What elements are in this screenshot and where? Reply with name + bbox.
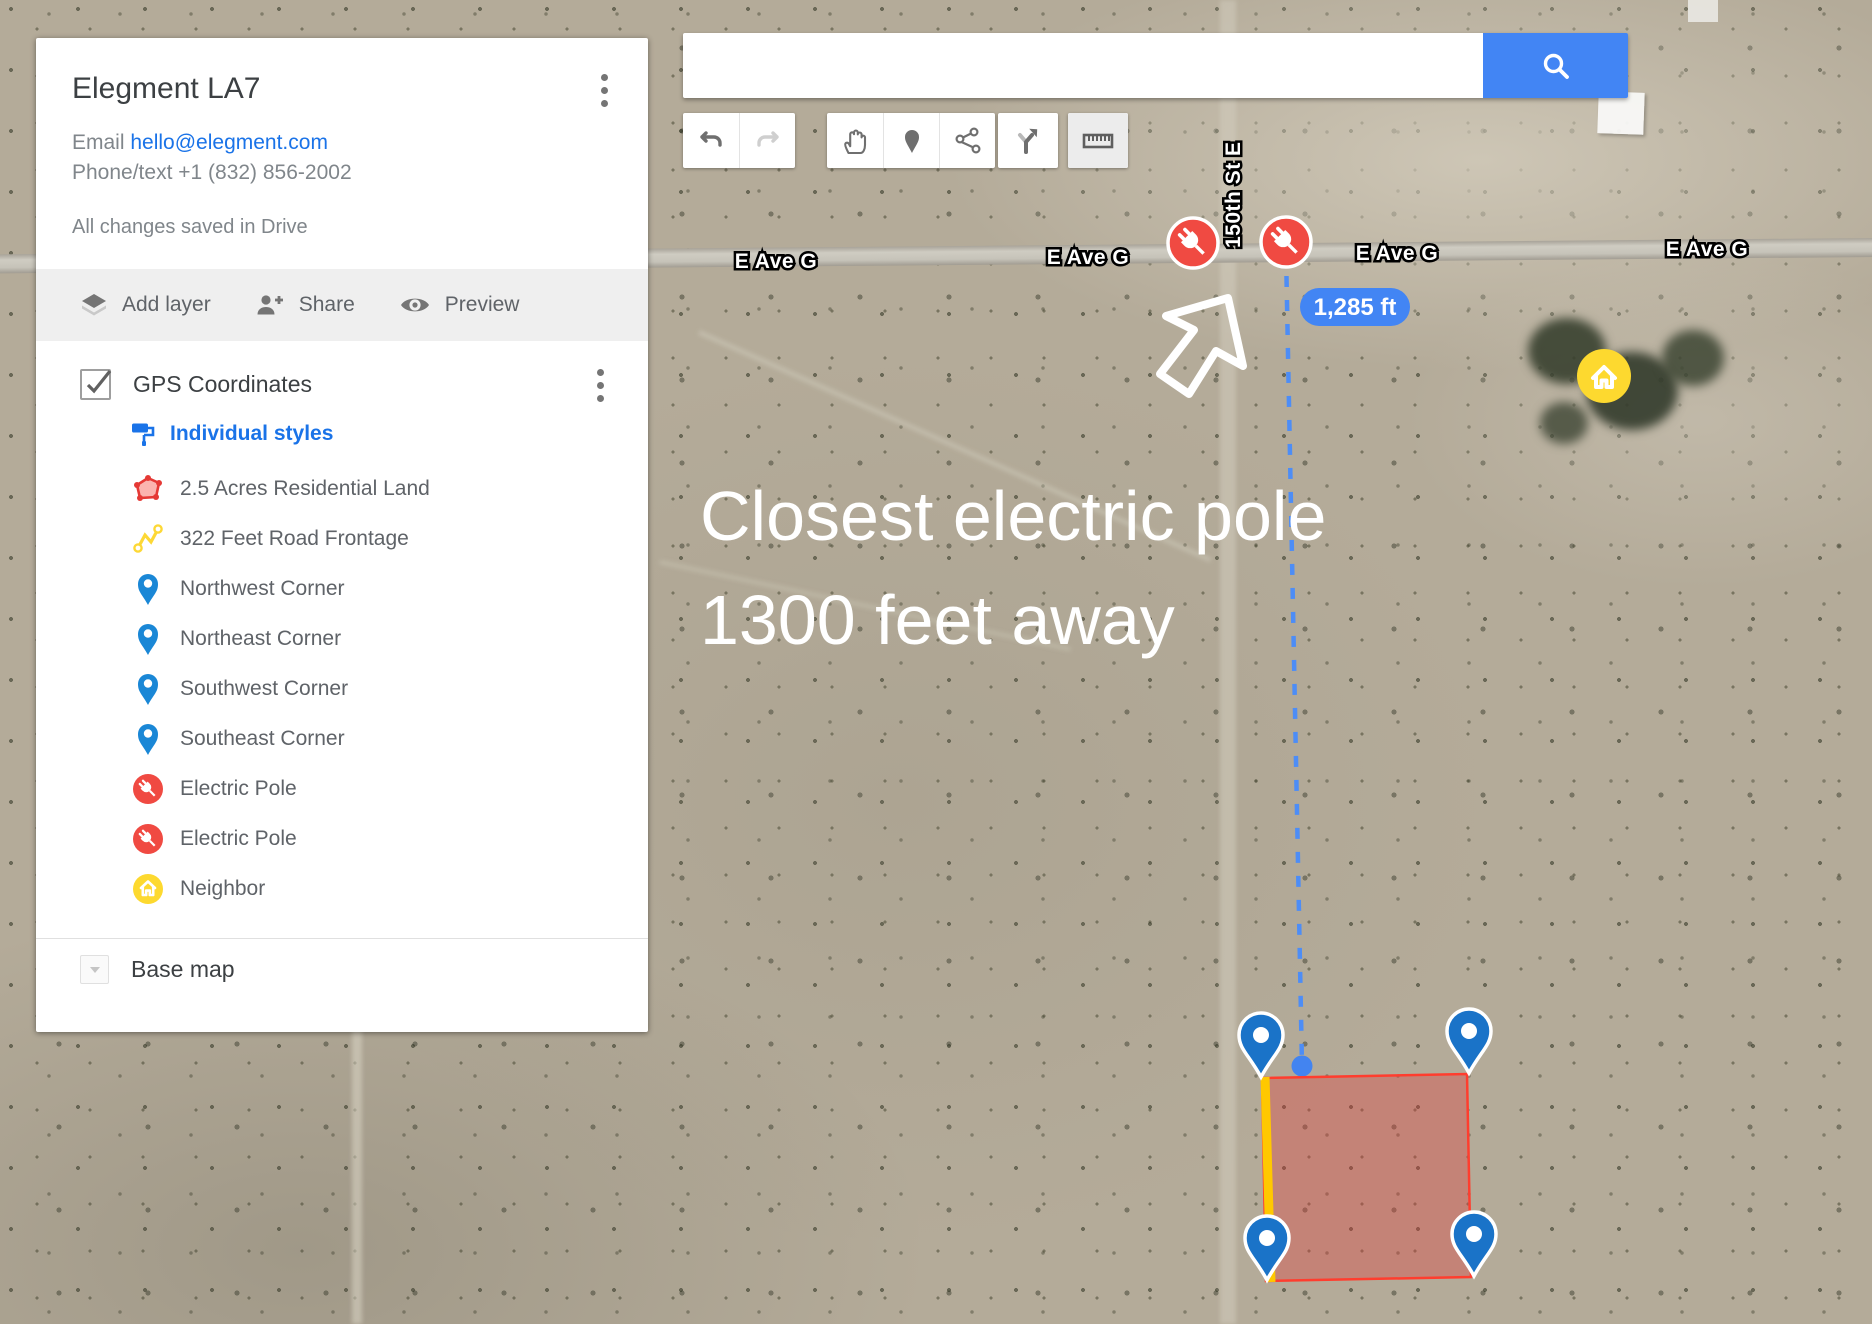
panel-action-bar: Add layer Share Preview bbox=[36, 269, 648, 341]
hand-icon bbox=[840, 126, 870, 156]
list-item-label: 2.5 Acres Residential Land bbox=[180, 477, 430, 501]
arrow-annotation bbox=[1160, 298, 1243, 394]
street-label-150th-st-e: 150th St E bbox=[1222, 141, 1245, 248]
eye-icon bbox=[399, 293, 431, 317]
electric-pole-marker[interactable] bbox=[1168, 218, 1218, 268]
measure-toolbar bbox=[1068, 113, 1128, 168]
layer-name[interactable]: GPS Coordinates bbox=[133, 371, 312, 398]
preview-button[interactable]: Preview bbox=[399, 293, 520, 317]
blue-pin-icon bbox=[130, 621, 166, 657]
road-label-e-ave-g: E Ave G bbox=[1356, 242, 1438, 265]
parcel-polygon[interactable] bbox=[1262, 1074, 1471, 1281]
search-icon bbox=[1541, 51, 1571, 81]
list-item-neighbor[interactable]: Neighbor bbox=[36, 864, 648, 914]
list-item-electric-pole-1[interactable]: Electric Pole bbox=[36, 764, 648, 814]
chevron-down-icon bbox=[89, 966, 101, 974]
undo-redo-toolbar bbox=[683, 113, 795, 168]
annotation-text-line2: 1300 feet away bbox=[700, 581, 1175, 659]
map-title: Elegment LA7 bbox=[72, 72, 612, 106]
list-item-southeast-corner[interactable]: Southeast Corner bbox=[36, 714, 648, 764]
ruler-icon bbox=[1081, 124, 1115, 158]
share-label: Share bbox=[299, 293, 355, 317]
blue-pin-icon bbox=[130, 571, 166, 607]
add-directions-button[interactable] bbox=[998, 113, 1058, 168]
contact-info: Email hello@elegment.com Phone/text +1 (… bbox=[72, 128, 612, 188]
svg-text:1,285 ft: 1,285 ft bbox=[1314, 294, 1397, 321]
pan-hand-tool-button[interactable] bbox=[827, 113, 883, 168]
base-map-dropdown-button[interactable] bbox=[80, 955, 109, 984]
draw-line-tool-button[interactable] bbox=[939, 113, 995, 168]
redo-button[interactable] bbox=[739, 113, 795, 168]
list-item-electric-pole-2[interactable]: Electric Pole bbox=[36, 814, 648, 864]
road-label-e-ave-g: E Ave G bbox=[1666, 238, 1748, 261]
save-status-text: All changes saved in Drive bbox=[72, 216, 612, 239]
redo-icon bbox=[753, 126, 783, 156]
layer-visibility-checkbox[interactable] bbox=[80, 369, 111, 400]
measure-ruler-button[interactable] bbox=[1068, 113, 1128, 168]
layer-item-list: 2.5 Acres Residential Land 322 Feet Road… bbox=[36, 464, 648, 914]
individual-styles-row[interactable]: Individual styles bbox=[36, 400, 648, 454]
electric-pole-icon bbox=[130, 771, 166, 807]
undo-icon bbox=[696, 126, 726, 156]
list-item-label: Electric Pole bbox=[180, 777, 297, 801]
layers-icon bbox=[80, 291, 108, 319]
add-layer-label: Add layer bbox=[122, 293, 211, 317]
preview-label: Preview bbox=[445, 293, 520, 317]
corner-pin-northwest[interactable] bbox=[1239, 1013, 1283, 1077]
measurement-badge: 1,285 ft bbox=[1300, 288, 1410, 326]
blue-pin-icon bbox=[130, 721, 166, 757]
list-item-label: Electric Pole bbox=[180, 827, 297, 851]
list-item-parcel[interactable]: 2.5 Acres Residential Land bbox=[36, 464, 648, 514]
marker-icon bbox=[897, 126, 927, 156]
list-item-road-frontage[interactable]: 322 Feet Road Frontage bbox=[36, 514, 648, 564]
directions-icon bbox=[1012, 125, 1044, 157]
checkmark-icon bbox=[84, 365, 114, 399]
list-item-label: Southwest Corner bbox=[180, 677, 348, 701]
measurement-endpoint-dot[interactable] bbox=[1292, 1056, 1313, 1077]
share-button[interactable]: Share bbox=[255, 291, 355, 319]
list-item-southwest-corner[interactable]: Southwest Corner bbox=[36, 664, 648, 714]
yellow-polyline-icon bbox=[130, 521, 166, 557]
measurement-dashed-line[interactable] bbox=[1286, 252, 1302, 1066]
map-editor-panel: Elegment LA7 Email hello@elegment.com Ph… bbox=[36, 38, 648, 1032]
road-label-e-ave-g: E Ave G bbox=[735, 250, 817, 273]
directions-toolbar bbox=[998, 113, 1058, 168]
corner-pin-northeast[interactable] bbox=[1447, 1009, 1491, 1073]
base-map-label: Base map bbox=[131, 956, 235, 983]
add-marker-tool-button[interactable] bbox=[883, 113, 939, 168]
panel-header: Elegment LA7 Email hello@elegment.com Ph… bbox=[36, 38, 648, 239]
draw-tools-toolbar bbox=[827, 113, 995, 168]
neighbor-marker[interactable] bbox=[1577, 349, 1631, 403]
blue-pin-icon bbox=[130, 671, 166, 707]
list-item-label: Southeast Corner bbox=[180, 727, 345, 751]
layer-options-menu-button[interactable] bbox=[591, 363, 610, 408]
electric-pole-icon bbox=[130, 821, 166, 857]
road-label-e-ave-g: E Ave G bbox=[1047, 246, 1129, 269]
list-item-label: Neighbor bbox=[180, 877, 265, 901]
search-button[interactable] bbox=[1483, 33, 1628, 98]
individual-styles-link[interactable]: Individual styles bbox=[170, 422, 333, 446]
map-options-menu-button[interactable] bbox=[595, 68, 614, 113]
home-icon bbox=[130, 871, 166, 907]
paint-roller-icon bbox=[130, 420, 158, 448]
layer-header: GPS Coordinates bbox=[36, 341, 648, 400]
red-polygon-icon bbox=[130, 471, 166, 507]
person-add-icon bbox=[255, 291, 285, 319]
base-map-row[interactable]: Base map bbox=[36, 939, 648, 984]
polyline-icon bbox=[952, 125, 984, 157]
search-bar bbox=[683, 33, 1628, 98]
email-link[interactable]: hello@elegment.com bbox=[130, 131, 328, 154]
email-label: Email bbox=[72, 131, 130, 154]
undo-button[interactable] bbox=[683, 113, 739, 168]
list-item-label: Northwest Corner bbox=[180, 577, 345, 601]
list-item-northeast-corner[interactable]: Northeast Corner bbox=[36, 614, 648, 664]
electric-pole-marker[interactable] bbox=[1261, 217, 1311, 267]
list-item-label: 322 Feet Road Frontage bbox=[180, 527, 409, 551]
search-input[interactable] bbox=[683, 33, 1483, 98]
list-item-label: Northeast Corner bbox=[180, 627, 341, 651]
annotation-text-line1: Closest electric pole bbox=[700, 477, 1326, 555]
add-layer-button[interactable]: Add layer bbox=[80, 291, 211, 319]
list-item-northwest-corner[interactable]: Northwest Corner bbox=[36, 564, 648, 614]
phone-text: Phone/text +1 (832) 856-2002 bbox=[72, 158, 612, 188]
